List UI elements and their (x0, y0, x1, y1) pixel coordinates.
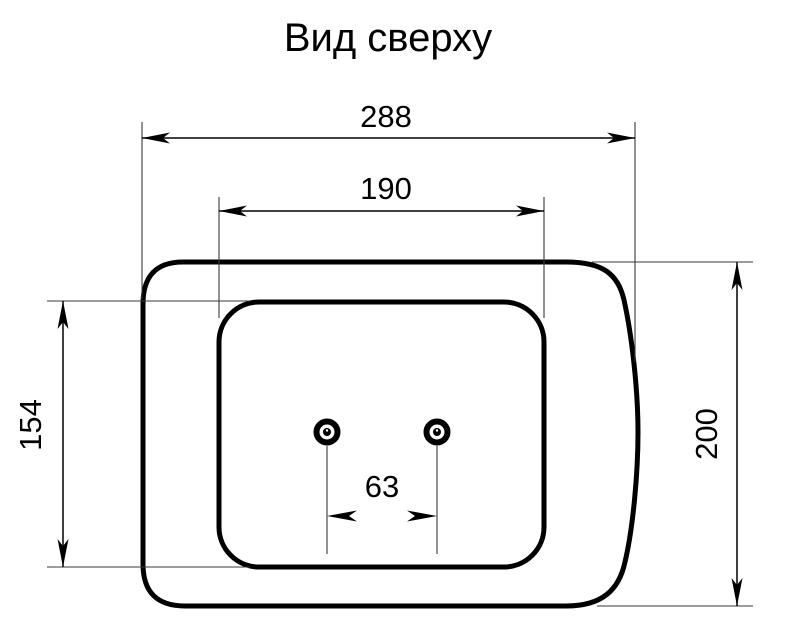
drawing-title: Вид сверху (284, 16, 492, 60)
dim-288-label: 288 (360, 99, 412, 134)
left-hole-center-dot (323, 428, 331, 436)
dim-190-label: 190 (360, 171, 412, 206)
right-hole-highlight (436, 429, 438, 431)
right-mounting-hole (427, 422, 448, 443)
dim-63-label: 63 (365, 469, 399, 504)
drawing-canvas: Вид сверху 288 190 154 200 (0, 0, 792, 642)
right-hole-center-dot (433, 428, 441, 436)
dim-200-label: 200 (689, 408, 724, 460)
technical-drawing: Вид сверху 288 190 154 200 (0, 0, 792, 642)
inner-panel-outline (219, 302, 544, 567)
left-hole-highlight (326, 429, 328, 431)
dim-154-label: 154 (13, 399, 48, 451)
dim-63-arrow-right (407, 511, 437, 522)
left-mounting-hole (317, 422, 338, 443)
dim-63-arrow-left (327, 511, 357, 522)
